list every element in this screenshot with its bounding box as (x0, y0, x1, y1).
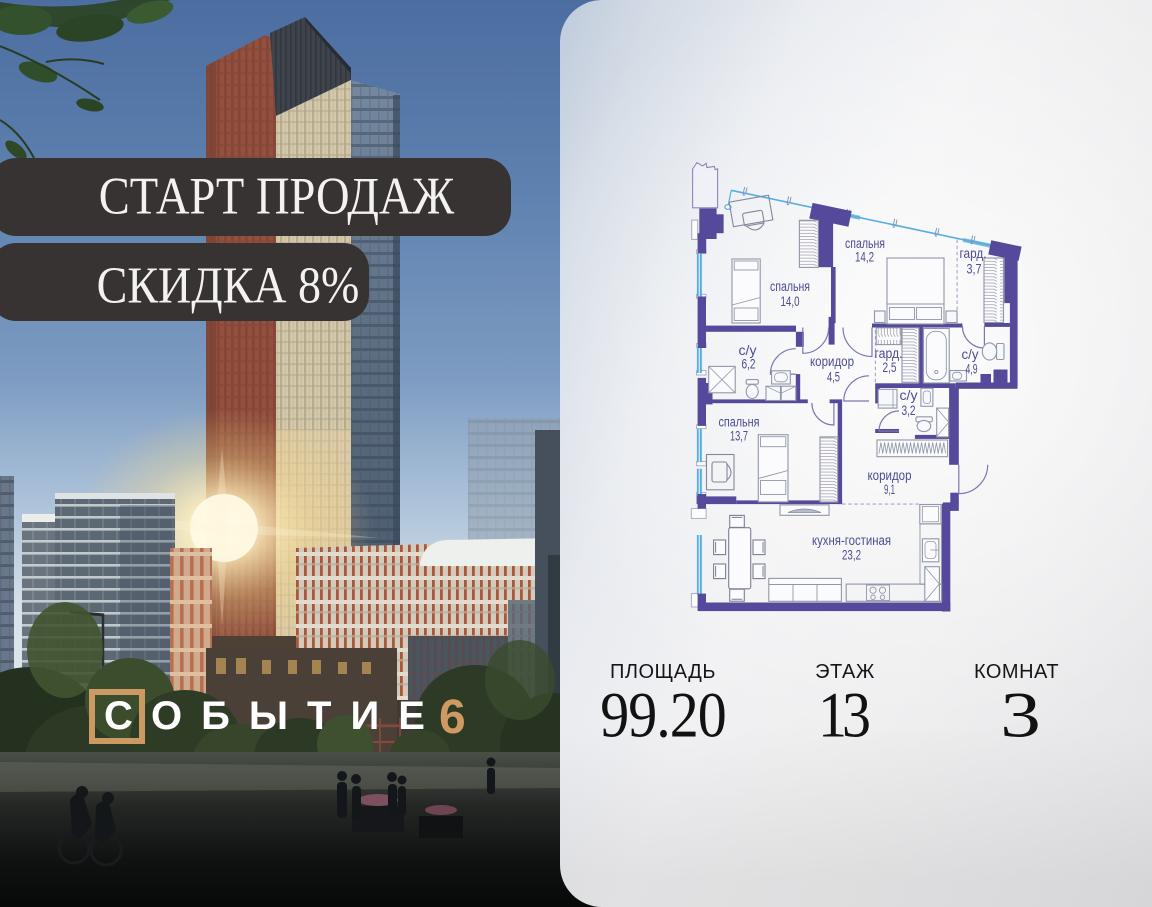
svg-text:13,7: 13,7 (730, 429, 748, 444)
svg-text:коридор: коридор (868, 468, 912, 483)
svg-text:3,7: 3,7 (967, 262, 982, 277)
svg-text:4,9: 4,9 (966, 362, 978, 377)
svg-text:14,0: 14,0 (781, 294, 800, 309)
svg-text:кухня-гостиная: кухня-гостиная (812, 533, 891, 548)
svg-text:3,2: 3,2 (902, 403, 916, 418)
svg-text:с/у: с/у (962, 347, 979, 362)
svg-text:спальня: спальня (770, 279, 810, 294)
svg-text:6,2: 6,2 (742, 357, 756, 372)
svg-text:коридор: коридор (810, 354, 854, 369)
svg-text:гард.: гард. (960, 246, 987, 261)
svg-text:спальня: спальня (719, 415, 760, 430)
svg-text:гард.: гард. (875, 346, 903, 361)
svg-text:14,2: 14,2 (855, 250, 874, 265)
svg-text:с/у: с/у (900, 388, 918, 403)
svg-text:9,1: 9,1 (884, 482, 895, 497)
svg-text:23,2: 23,2 (842, 548, 861, 563)
svg-text:4,5: 4,5 (827, 370, 840, 385)
svg-text:2,5: 2,5 (883, 360, 897, 375)
